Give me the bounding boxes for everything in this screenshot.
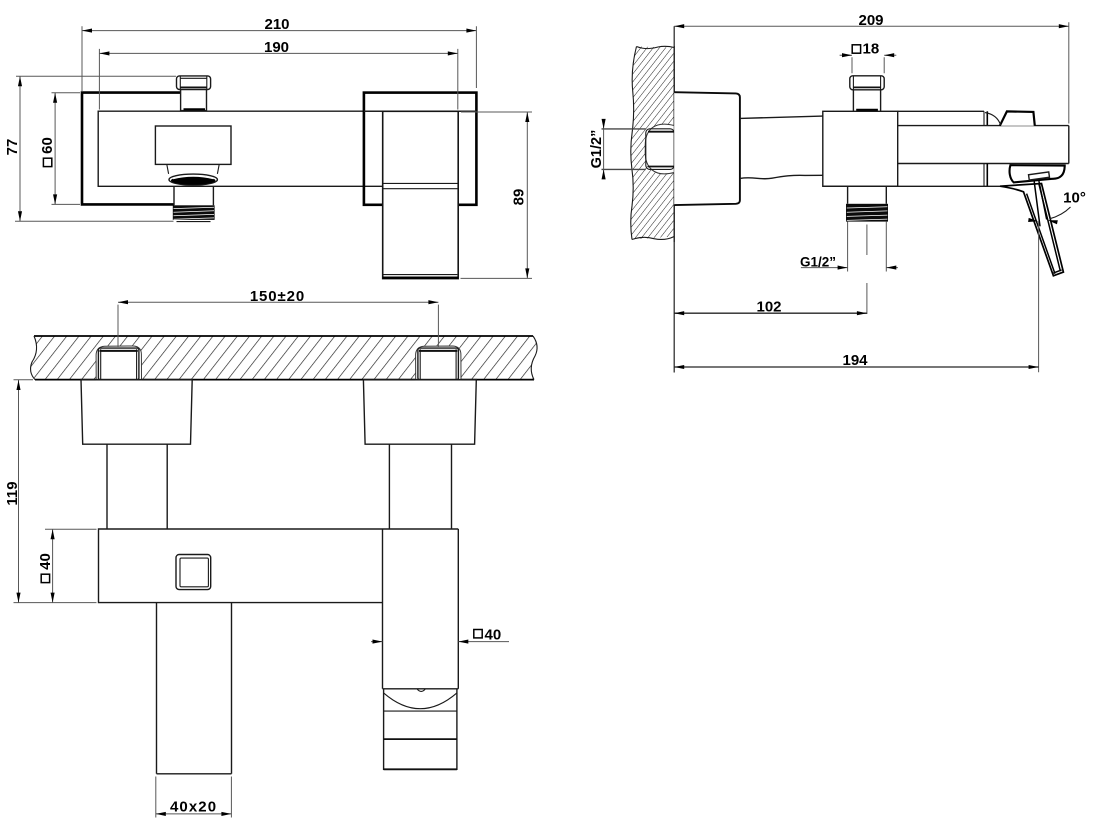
svg-text:89: 89 xyxy=(510,189,527,206)
svg-text:G1/2”: G1/2” xyxy=(800,255,836,270)
svg-text:40x20: 40x20 xyxy=(170,798,217,815)
svg-text:210: 210 xyxy=(264,16,289,33)
svg-text:209: 209 xyxy=(858,12,883,29)
svg-text:150±20: 150±20 xyxy=(250,288,305,305)
svg-text:102: 102 xyxy=(756,298,781,315)
svg-text:18: 18 xyxy=(863,40,880,57)
svg-text:194: 194 xyxy=(842,352,868,369)
svg-text:G1/2”: G1/2” xyxy=(589,130,605,169)
svg-text:190: 190 xyxy=(264,39,289,56)
svg-text:60: 60 xyxy=(39,137,56,154)
svg-text:40: 40 xyxy=(37,553,54,570)
svg-text:40: 40 xyxy=(485,626,502,643)
svg-text:77: 77 xyxy=(4,139,21,156)
svg-text:10°: 10° xyxy=(1063,190,1086,207)
svg-text:119: 119 xyxy=(4,481,21,505)
